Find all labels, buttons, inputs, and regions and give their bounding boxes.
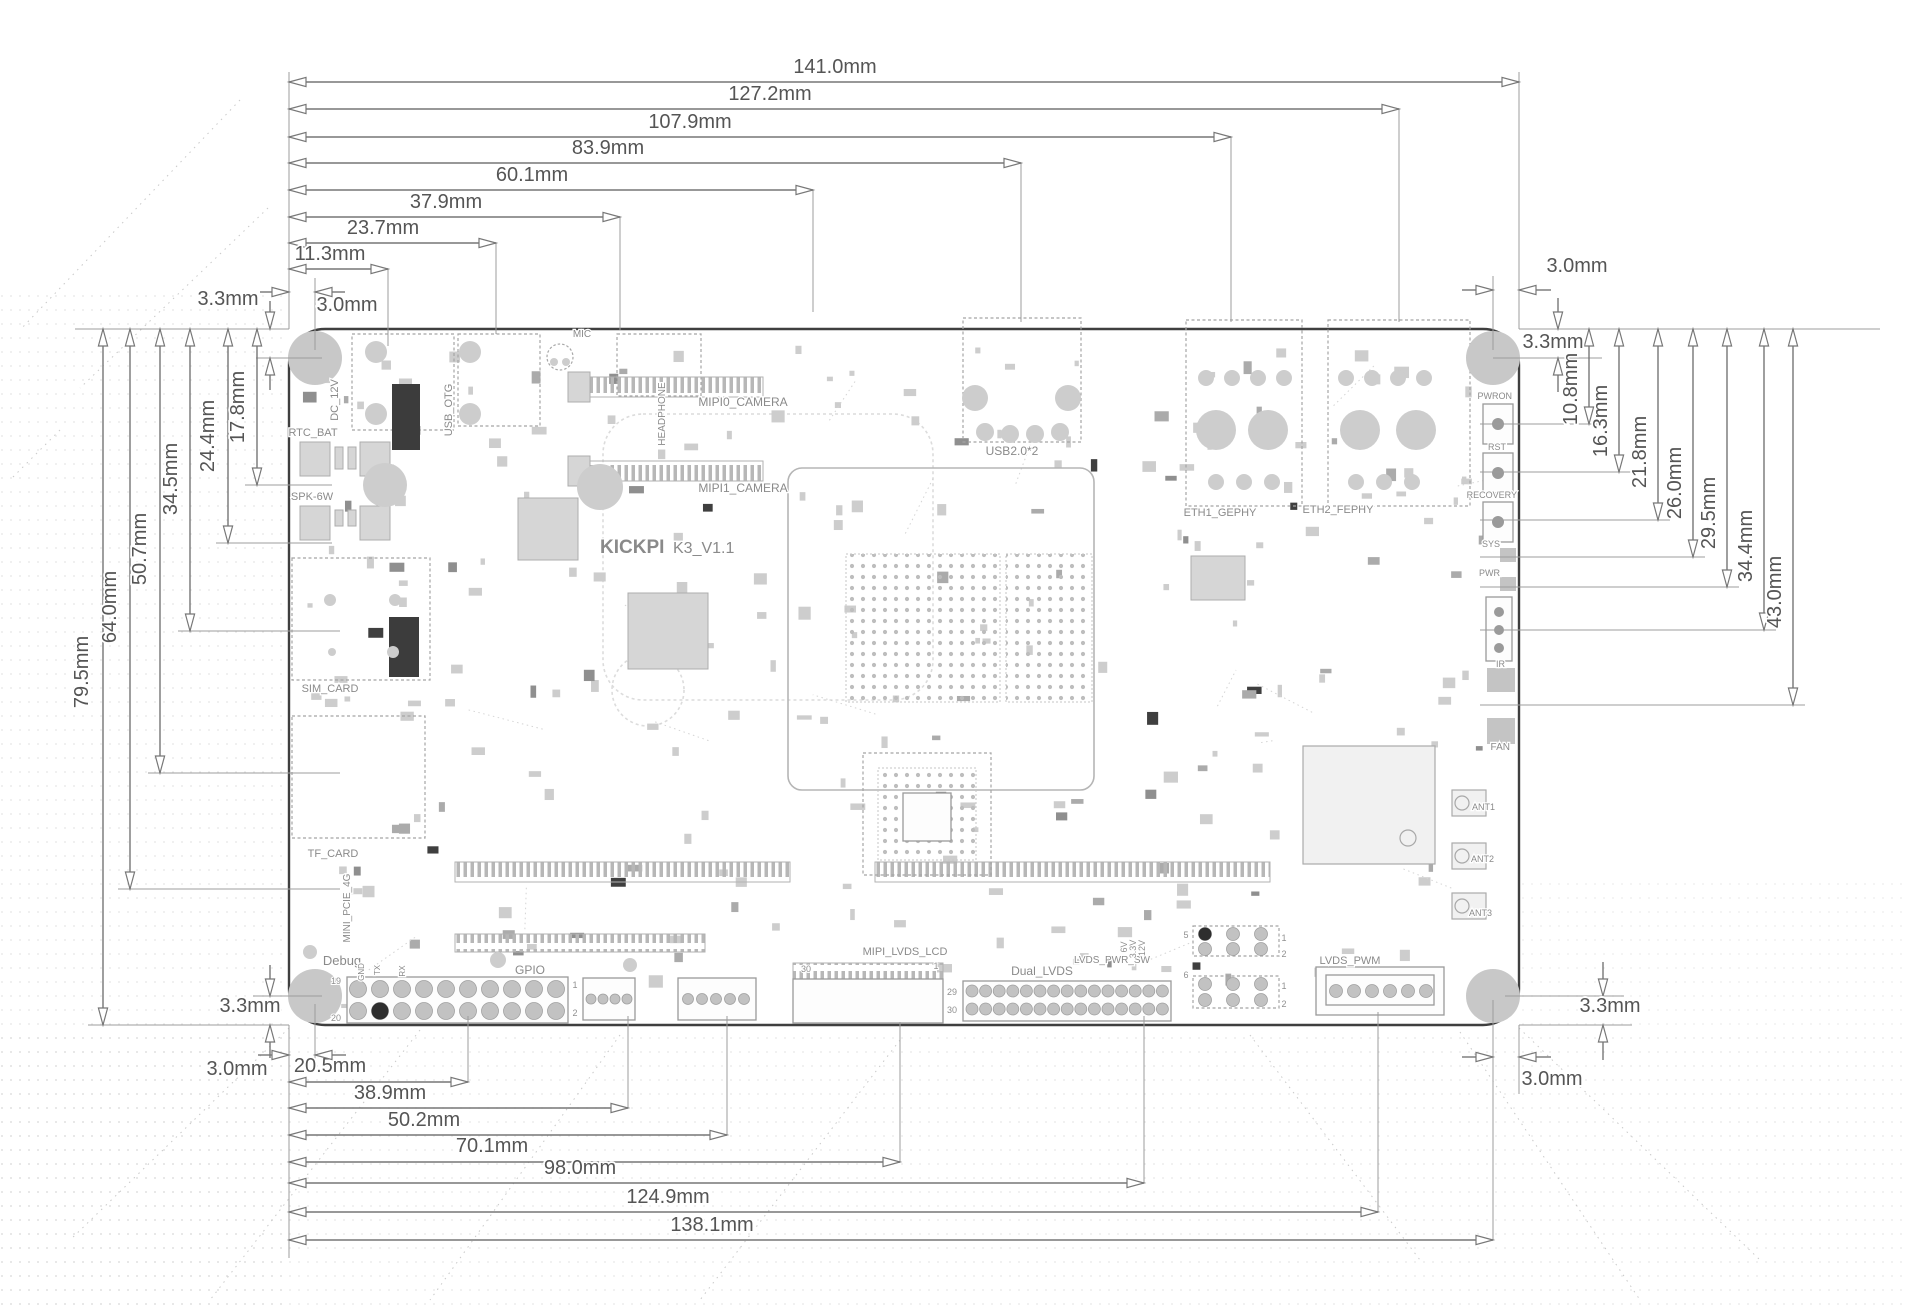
dimension-arrowhead: [1214, 132, 1231, 141]
dim-label: 11.3mm: [295, 243, 366, 265]
jumper-pins: [1255, 928, 1268, 941]
dual-lvds-pins: [1061, 1003, 1073, 1015]
dimension-arrowhead: [1722, 570, 1731, 587]
dual-lvds-pins: [1102, 1003, 1114, 1015]
jumper-pins: [1255, 994, 1268, 1007]
board-label-rst: RST: [1488, 442, 1507, 452]
dimension-arrowhead: [1004, 158, 1021, 167]
jumper-pins: [1199, 943, 1212, 956]
dual-lvds-pins: [1061, 985, 1073, 997]
dim-label: 3.0mm: [206, 1058, 267, 1080]
dimension-arrowhead: [371, 264, 388, 273]
gpio-pins: [460, 981, 477, 998]
gpio-pins: [526, 1003, 543, 1020]
dim-label: 17.8mm: [227, 371, 249, 443]
pcb-dim-drawing-page: 141.0mm127.2mm107.9mm83.9mm60.1mm37.9mm2…: [0, 0, 1905, 1310]
dot-hatch: [1519, 880, 1905, 1028]
jst-pins: [683, 994, 694, 1005]
dim-right-21.8mm: 21.8mm: [1629, 329, 1663, 520]
dim-label: 98.0mm: [544, 1157, 616, 1179]
board-label-mipi0-camera: MIPI0_CAMERA: [698, 395, 787, 409]
component-pad: [328, 648, 336, 656]
dimension-arrowhead: [289, 185, 306, 194]
dimension-arrowhead: [1759, 329, 1768, 346]
component-pad: [562, 358, 570, 366]
board-label-sim-card: SIM_CARD: [302, 683, 359, 695]
board-label-rtc-bat: RTC_BAT: [288, 427, 337, 439]
dimension-arrowhead: [1788, 688, 1797, 705]
dual-lvds-pins: [1007, 985, 1019, 997]
dual-lvds-pins: [1102, 985, 1114, 997]
component-pad: [1416, 370, 1432, 386]
board-label-dual-lvds: Dual_LVDS: [1011, 964, 1073, 978]
lvds-pwm-pins: [1366, 985, 1379, 998]
dim-label: 70.1mm: [456, 1135, 528, 1157]
ddr-chip: [518, 498, 578, 560]
component-pad: [1198, 370, 1214, 386]
dim-label: 23.7mm: [347, 217, 419, 239]
dim-label: 127.2mm: [728, 83, 811, 105]
dim-top-60.1mm: 60.1mm: [289, 164, 813, 195]
dual-lvds-pins: [980, 985, 992, 997]
spk-pad: [360, 506, 390, 540]
dim-right-26.0mm: 26.0mm: [1664, 329, 1698, 557]
gpio-pins: [350, 1003, 367, 1020]
component-pad: [490, 952, 506, 968]
pin-number: 30: [801, 964, 811, 974]
board-label-k3-v1-1: K3_V1.1: [673, 540, 734, 557]
board-label-ant1: ANT1: [1472, 802, 1495, 812]
board-label-pwron: PWRON: [1478, 391, 1513, 401]
dim-label: 10.8mm: [1560, 353, 1582, 425]
dim-label: 3.3mm: [1579, 995, 1640, 1017]
dimension-arrowhead: [289, 132, 306, 141]
fan-pad: [1487, 718, 1515, 744]
board-label-mic: MIC: [573, 329, 591, 340]
dual-lvds-pins: [1156, 1003, 1168, 1015]
component-pad: [577, 464, 623, 510]
pin-number: 1: [1281, 933, 1286, 943]
pin-number: 5: [1183, 930, 1188, 940]
pin-number: 2: [1281, 949, 1286, 959]
dual-lvds-pins: [1129, 985, 1141, 997]
component-pad: [1026, 425, 1044, 443]
dim-label: 21.8mm: [1629, 416, 1651, 488]
component-pad: [1404, 474, 1420, 490]
jst-pins: [739, 994, 750, 1005]
dim-label: 16.3mm: [1590, 385, 1612, 457]
dual-lvds-pins: [1116, 985, 1128, 997]
board-label-debug: Debug: [323, 953, 361, 968]
dual-lvds-pins: [980, 1003, 992, 1015]
dim-label: 29.5mm: [1698, 477, 1720, 549]
dimension-arrowhead: [603, 212, 620, 221]
gpio-pins: [548, 981, 565, 998]
dual-lvds-pins: [1156, 985, 1168, 997]
dim-right-43.0mm: 43.0mm: [1764, 329, 1798, 705]
board-label-recovery: RECOVERY: [1467, 490, 1517, 500]
jst-pins: [586, 994, 596, 1004]
component-pad: [1224, 370, 1240, 386]
dimension-arrowhead: [289, 104, 306, 113]
component-pad: [976, 423, 994, 441]
component-pad: [1001, 425, 1019, 443]
jst-pins: [622, 994, 632, 1004]
board-label-mini-pcie-4g: MINI_PCIE_4G: [342, 873, 353, 942]
board-label-mipi-lvds-lcd: MIPI_LVDS_LCD: [863, 946, 948, 958]
gpio-pins: [504, 1003, 521, 1020]
jst-pins: [697, 994, 708, 1005]
dimension-arrowhead: [1653, 329, 1662, 346]
dim-label: 43.0mm: [1764, 556, 1786, 628]
lvds-pwm-pins: [1330, 985, 1343, 998]
dim-right-29.5mm: 29.5mm: [1698, 329, 1732, 587]
dimension-arrowhead: [1614, 455, 1623, 472]
board-label-ant3: ANT3: [1469, 908, 1492, 918]
component-pad: [1338, 370, 1354, 386]
board-label-pwr: PWR: [1479, 568, 1500, 578]
dimension-arrowhead: [1688, 329, 1697, 346]
component-pad: [324, 594, 336, 606]
jumper-pins: [1255, 943, 1268, 956]
component-pad: [1340, 410, 1380, 450]
component-pad: [1494, 607, 1504, 617]
dimension-arrowhead: [1553, 312, 1562, 329]
component-pad: [1264, 474, 1280, 490]
mini-pcie-row: [875, 862, 1270, 882]
dim-label: 3.3mm: [219, 995, 280, 1017]
dimension-arrowhead: [1476, 285, 1493, 294]
component-pad: [1196, 410, 1236, 450]
dual-lvds-pins: [1143, 985, 1155, 997]
dual-lvds-pins: [1075, 985, 1087, 997]
rtc-pad: [300, 442, 330, 476]
dual-lvds-pins: [1048, 1003, 1060, 1015]
pin-1-marker: [372, 1003, 389, 1020]
pin-number: 20: [331, 1013, 341, 1023]
component-pad: [1348, 474, 1364, 490]
rtc-part: [335, 447, 343, 469]
pcb-dimension-drawing: 141.0mm127.2mm107.9mm83.9mm60.1mm37.9mm2…: [0, 0, 1905, 1310]
component-pad: [1376, 474, 1392, 490]
dim-label: 64.0mm: [99, 571, 121, 643]
dimension-arrowhead: [289, 264, 306, 273]
component-pad: [1396, 410, 1436, 450]
dual-lvds-pins: [1034, 985, 1046, 997]
component-pad: [550, 358, 558, 366]
component-pad: [387, 646, 399, 658]
board-label-usb2-0-2: USB2.0*2: [986, 444, 1039, 458]
gpio-pins: [504, 981, 521, 998]
component-pad: [1250, 370, 1266, 386]
phy-chip: [1191, 556, 1245, 600]
dim-label: 138.1mm: [670, 1214, 753, 1236]
dimension-arrowhead: [796, 185, 813, 194]
dual-lvds-pins: [1129, 1003, 1141, 1015]
pin-number: 12V: [1137, 940, 1147, 956]
board-label-kickpi: KICKPI: [600, 537, 664, 558]
dual-lvds-pins: [993, 1003, 1005, 1015]
jst-pins: [711, 994, 722, 1005]
dual-lvds-pins: [1088, 1003, 1100, 1015]
dimension-arrowhead: [1653, 503, 1662, 520]
gpio-pins: [416, 981, 433, 998]
wifi-module: [1303, 746, 1435, 864]
mipi0-camera-connector: [573, 377, 763, 397]
pin-number: 19: [331, 976, 341, 986]
dim-label: 3.3mm: [1522, 331, 1583, 353]
dimension-arrowhead: [1584, 329, 1593, 346]
dimension-arrowhead: [289, 212, 306, 221]
jumper-pins: [1227, 943, 1240, 956]
component-pad: [623, 958, 637, 972]
component-pad: [1248, 410, 1288, 450]
dual-lvds-pins: [1007, 1003, 1019, 1015]
gpio-pins: [394, 1003, 411, 1020]
gpio-pins: [438, 1003, 455, 1020]
board-label-ir: IR: [1496, 659, 1506, 669]
component-pad: [1236, 474, 1252, 490]
gpio-pins: [394, 981, 411, 998]
mini-pcie-row: [455, 862, 790, 882]
dot-hatch: [0, 1028, 1905, 1310]
lcd-fpc-body: [793, 979, 943, 1023]
lvds-pwm-pins: [1384, 985, 1397, 998]
jst-pins: [725, 994, 736, 1005]
pin-number: 2: [572, 1008, 577, 1018]
component-pad: [365, 341, 387, 363]
jumper-pins: [1227, 928, 1240, 941]
dim-label: 107.9mm: [648, 111, 731, 133]
soc-bga: [846, 554, 1000, 702]
rtc-part: [348, 447, 356, 469]
dim-top-141.0mm: 141.0mm: [289, 56, 1519, 87]
board-label-headphone: HEADPHONE: [657, 382, 668, 446]
dim-label: 83.9mm: [572, 137, 644, 159]
component-pad: [1276, 370, 1292, 386]
dual-lvds-pins: [1048, 985, 1060, 997]
pin-number: 30: [947, 1005, 957, 1015]
dual-lvds-pins: [1088, 985, 1100, 997]
dim-label: 24.4mm: [197, 400, 219, 472]
dim-top-107.9mm: 107.9mm: [289, 111, 1231, 142]
dimension-arrowhead: [289, 158, 306, 167]
dual-lvds-pins: [1020, 985, 1032, 997]
lvds-pwm-pins: [1348, 985, 1361, 998]
dimension-arrowhead: [1519, 285, 1536, 294]
component-pad: [459, 341, 481, 363]
board-label-rx: RX: [398, 965, 407, 977]
emmc-chip: [628, 593, 708, 669]
board-label-sys: SYS: [1482, 539, 1500, 549]
gpio-pins: [526, 981, 543, 998]
dim-label: 3.0mm: [316, 294, 377, 316]
inductor: [392, 384, 420, 450]
component-pad: [303, 945, 317, 959]
jumper-pins: [1199, 994, 1212, 1007]
component-pad: [363, 463, 407, 507]
dim-label: 34.4mm: [1735, 510, 1757, 582]
pin-number: 29: [947, 987, 957, 997]
dimension-arrowhead: [479, 238, 496, 247]
pin-number: 1: [572, 980, 577, 990]
dim-label: 26.0mm: [1664, 447, 1686, 519]
dim-label: 50.7mm: [129, 513, 151, 585]
pin-number: 1: [933, 961, 938, 971]
gpio-pins: [548, 1003, 565, 1020]
dual-lvds-pins: [1116, 1003, 1128, 1015]
dual-lvds-pins: [1075, 1003, 1087, 1015]
pmic-inner: [903, 793, 951, 841]
spk-pad: [300, 506, 330, 540]
spk-part: [335, 510, 343, 526]
dim-label: 3.0mm: [1546, 255, 1607, 277]
dual-lvds-pins: [1020, 1003, 1032, 1015]
dim-label: 3.3mm: [197, 288, 258, 310]
dim-label: 124.9mm: [626, 1186, 709, 1208]
component-pad: [1364, 370, 1380, 386]
pin-number: 1: [1281, 981, 1286, 991]
board-label-lvds-pwm: LVDS_PWM: [1320, 955, 1381, 967]
jst-pins: [598, 994, 608, 1004]
board-label-gnd: GND: [357, 963, 366, 981]
fan-pad: [1487, 668, 1515, 692]
pin-1-marker: [1199, 928, 1212, 941]
board-label-tx: TX: [373, 964, 382, 975]
pin-number: 6: [1183, 970, 1188, 980]
dimension-arrowhead: [1722, 329, 1731, 346]
lvds-pwm-pins: [1420, 985, 1433, 998]
mini-pcie-row: [455, 934, 705, 952]
gpio-pins: [350, 981, 367, 998]
component-pad: [389, 594, 401, 606]
dimension-arrowhead: [1502, 77, 1519, 86]
component-pad: [1492, 516, 1504, 528]
board-label-spk-6w: SPK-6W: [291, 491, 334, 503]
dim-label: 3.0mm: [1521, 1068, 1582, 1090]
dim-label: 141.0mm: [793, 56, 876, 78]
dimension-arrowhead: [289, 77, 306, 86]
dual-lvds-pins: [1143, 1003, 1155, 1015]
board-label-mipi1-camera: MIPI1_CAMERA: [698, 481, 787, 495]
board-label-ant2: ANT2: [1471, 854, 1494, 864]
pin-number: 2: [1281, 999, 1286, 1009]
dual-lvds-pins: [993, 985, 1005, 997]
dim-label: 34.5mm: [160, 443, 182, 515]
dual-lvds-pins: [966, 985, 978, 997]
dim-corner-2-3.0mm: 3.0mm: [1462, 255, 1608, 295]
gpio-pins: [482, 1003, 499, 1020]
dim-top-11.3mm: 11.3mm: [289, 243, 388, 274]
dim-label: 60.1mm: [496, 164, 568, 186]
jumper-pins: [1227, 978, 1240, 991]
soc-bga: [1006, 554, 1092, 702]
gpio-pins: [482, 981, 499, 998]
dual-lvds-pins: [966, 1003, 978, 1015]
pwr-led: [1500, 577, 1516, 591]
component-pad: [365, 403, 387, 425]
dim-label: 50.2mm: [388, 1109, 460, 1131]
component-pad: [1055, 385, 1081, 411]
board-label-eth1-gephy: ETH1_GEPHY: [1184, 507, 1257, 519]
dim-label: 79.5mm: [71, 636, 93, 708]
dim-top-37.9mm: 37.9mm: [289, 191, 620, 222]
dim-right-16.3mm: 16.3mm: [1590, 329, 1624, 472]
dim-label: 37.9mm: [410, 191, 482, 213]
mipi0-end: [568, 372, 590, 402]
sys-led: [1500, 548, 1516, 562]
component-pad: [1390, 370, 1406, 386]
component-pad: [459, 403, 481, 425]
board-label-eth2-fephy: ETH2_FEPHY: [1303, 504, 1375, 516]
jumper-pins: [1199, 978, 1212, 991]
component-pad: [1494, 643, 1504, 653]
dimension-arrowhead: [1788, 329, 1797, 346]
board-label-dc-12v: DC_12V: [329, 379, 341, 421]
dimension-arrowhead: [1382, 104, 1399, 113]
dual-lvds-pins: [1034, 1003, 1046, 1015]
dim-top-83.9mm: 83.9mm: [289, 137, 1021, 168]
dim-top-127.2mm: 127.2mm: [289, 83, 1399, 114]
jumper-pins: [1227, 994, 1240, 1007]
lcd-fpc-pins: [793, 963, 943, 979]
component-pad: [1051, 423, 1069, 441]
jumper-pins: [1255, 978, 1268, 991]
jst-pins: [610, 994, 620, 1004]
gpio-pins: [372, 981, 389, 998]
dimension-arrowhead: [1614, 329, 1623, 346]
board-label-gpio: GPIO: [515, 963, 545, 977]
board-label-usb-otg: USB_OTG: [443, 384, 455, 437]
dim-label: 38.9mm: [354, 1082, 426, 1104]
spk-part: [348, 510, 356, 526]
component-pad: [1208, 474, 1224, 490]
gpio-pins: [416, 1003, 433, 1020]
dimension-arrowhead: [1688, 540, 1697, 557]
board-label-fan: FAN: [1491, 742, 1510, 753]
gpio-pins: [438, 981, 455, 998]
component-pad: [962, 385, 988, 411]
board-label-tf-card: TF_CARD: [308, 848, 359, 860]
component-pad: [1492, 467, 1504, 479]
lvds-pwm-pins: [1402, 985, 1415, 998]
